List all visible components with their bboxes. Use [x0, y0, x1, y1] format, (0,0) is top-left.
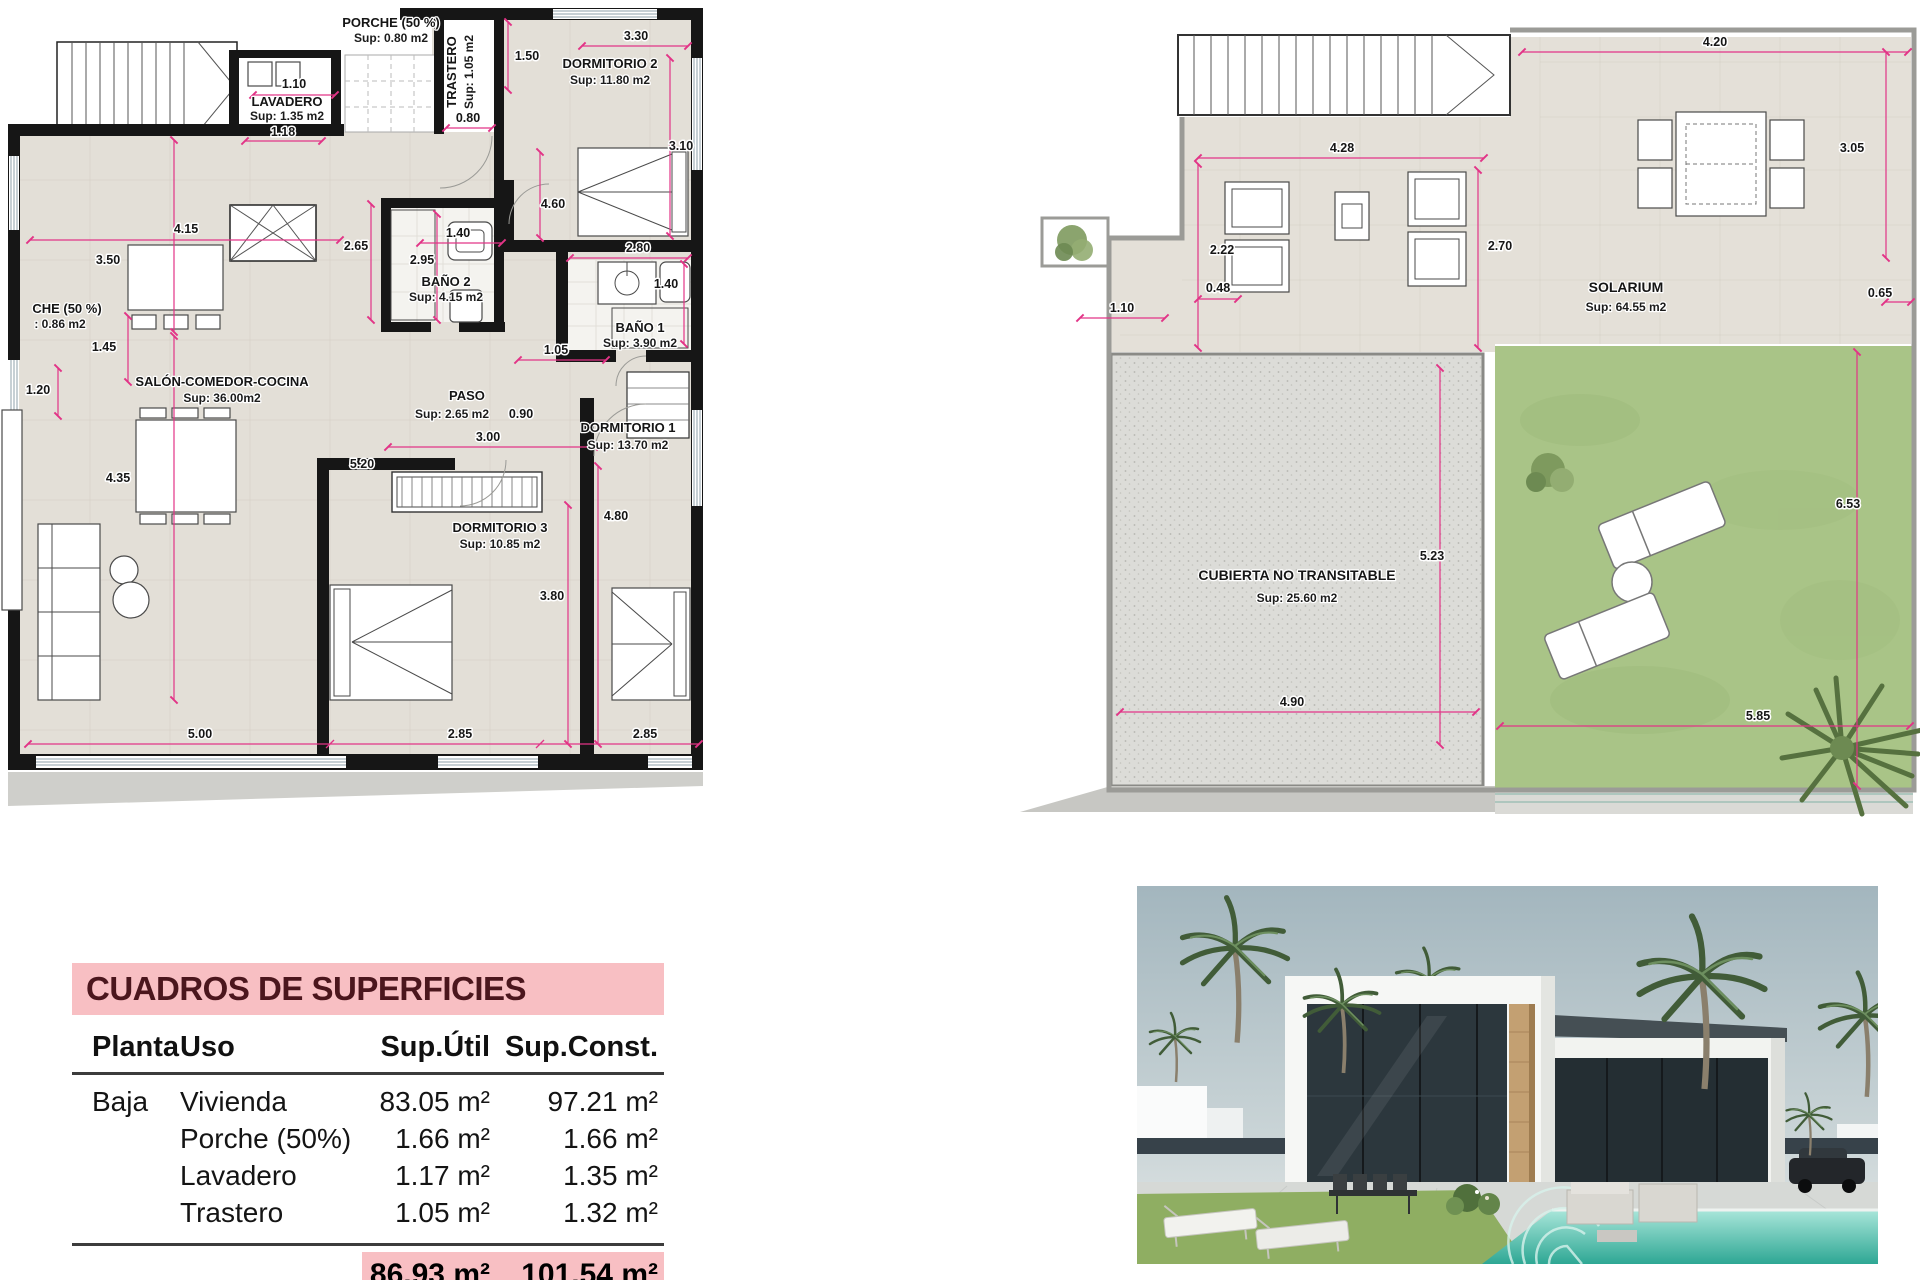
cell-const: 1.32 m² — [504, 1194, 664, 1231]
architectural-sheet: PORCHE (50 %) Sup: 0.80 m2 1.10 LAVADERO… — [0, 0, 1920, 1280]
dim-cubierta-w: 4.90 — [1280, 695, 1304, 709]
dim-lawn-w: 5.85 — [1746, 709, 1770, 723]
dim-dorm1-w: 2.85 — [633, 727, 657, 741]
dim-kitchen-w: 4.15 — [174, 222, 198, 236]
dim-dorm1-h: 4.80 — [604, 509, 628, 523]
room-sup-bano1: Sup: 3.90 m2 — [603, 336, 677, 350]
total-const: 101.54 m² — [504, 1258, 664, 1280]
dim-porch-b: 1.20 — [26, 383, 50, 397]
glass-right — [1552, 1058, 1768, 1188]
room-label-cubierta: CUBIERTA NO TRANSITABLE — [1198, 567, 1395, 583]
dim-door-a: 1.05 — [544, 343, 568, 357]
dim-paso-extra: 0.90 — [509, 407, 533, 421]
dim-trastero-h: 1.50 — [515, 49, 539, 63]
room-label-porche-top: PORCHE (50 %) — [342, 15, 440, 30]
cell-util: 1.05 m² — [362, 1194, 504, 1231]
dim-hall-b: 2.95 — [410, 253, 434, 267]
room-sup-paso: Sup: 2.65 m2 — [415, 407, 489, 421]
room-label-salon: SALÓN-COMEDOR-COCINA — [135, 374, 309, 389]
dim-hall-pass: 1.40 — [446, 226, 470, 240]
staircase — [57, 42, 237, 132]
bed-dorm1 — [612, 588, 690, 700]
dim-kitchen-w: 4.28 — [1330, 141, 1354, 155]
ground-floor-plan: PORCHE (50 %) Sup: 0.80 m2 1.10 LAVADERO… — [0, 0, 705, 810]
room-sup-dorm3: Sup: 10.85 m2 — [460, 537, 541, 551]
cell-planta — [72, 1157, 180, 1194]
room-sup-trastero: Sup: 1.05 m2 — [462, 35, 476, 109]
bed-dorm3 — [330, 585, 452, 700]
cell-util: 1.66 m² — [362, 1120, 504, 1157]
dim-solarium-top: 4.20 — [1703, 35, 1727, 49]
dining-table — [136, 408, 236, 524]
room-label-trastero: TRASTERO — [444, 36, 459, 108]
dim-lavadero-top: 1.10 — [282, 77, 306, 91]
dim-bano1-w: 2.80 — [626, 241, 650, 255]
total-band: 86.93 m² 101.54 m² — [362, 1252, 664, 1280]
room-sup-solarium: Sup: 64.55 m2 — [1586, 300, 1667, 314]
surface-table-header: Planta Uso Sup.Útil Sup.Const. — [72, 1031, 664, 1075]
cell-planta — [72, 1194, 180, 1231]
room-label-porche-left: CHE (50 %) — [32, 301, 101, 316]
dim-solarium-right: 3.05 — [1840, 141, 1864, 155]
room-label-dorm2: DORMITORIO 2 — [562, 56, 657, 71]
dim-kitchen-h: 2.22 — [1210, 243, 1234, 257]
dim-planter-w: 1.10 — [1110, 301, 1134, 315]
room-sup-dorm2: Sup: 11.80 m2 — [570, 73, 650, 87]
cell-planta — [72, 1120, 180, 1157]
room-label-solarium: SOLARIUM — [1589, 279, 1664, 295]
dim-dorm2-h: 3.10 — [669, 139, 693, 153]
cell-const: 1.66 m² — [504, 1120, 664, 1157]
roof-staircase — [1178, 35, 1510, 115]
surface-table-body: Baja Vivienda 83.05 m² 97.21 m² Porche (… — [72, 1075, 664, 1246]
dim-dorm3-h: 5.20 — [350, 457, 374, 471]
bathroom2-fixtures — [391, 208, 494, 322]
room-sup-dorm1: Sup: 13.70 m2 — [588, 438, 669, 452]
room-sup-porche-left: : 0.86 m2 — [34, 317, 86, 331]
dim-salon-w: 5.00 — [188, 727, 212, 741]
dim-step-a: 0.48 — [1206, 281, 1230, 295]
dim-salon-h: 4.35 — [106, 471, 130, 485]
room-label-bano1: BAÑO 1 — [615, 320, 664, 335]
roof-plan: 4.20 3.05 4.28 2.22 2.70 0.48 1.10 0.65 … — [880, 0, 1920, 820]
dim-trastero-w: 0.80 — [456, 111, 480, 125]
col-sup-const: Sup.Const. — [504, 1031, 664, 1064]
col-planta: Planta — [72, 1031, 180, 1064]
dim-porch-a: 1.45 — [92, 340, 116, 354]
room-sup-salon: Sup: 36.00m2 — [183, 391, 261, 405]
dim-dorm2-w: 3.30 — [624, 29, 648, 43]
dim-lawn-h: 6.53 — [1836, 497, 1860, 511]
room-sup-lavadero: Sup: 1.35 m2 — [250, 109, 324, 123]
dim-dorm2-v: 4.60 — [541, 197, 565, 211]
villa-render — [1137, 886, 1878, 1264]
dim-lavadero-bottom: 1.18 — [271, 125, 295, 139]
surface-table: CUADROS DE SUPERFICIES Planta Uso Sup.Út… — [72, 963, 664, 1280]
dim-dorm3-w: 2.85 — [448, 727, 472, 741]
cell-uso: Trastero — [180, 1194, 362, 1231]
dim-solarium-mid: 2.70 — [1488, 239, 1512, 253]
col-sup-util: Sup.Útil — [362, 1031, 504, 1064]
porch-top — [345, 55, 437, 132]
dim-hall-a: 2.65 — [344, 239, 368, 253]
room-label-lavadero: LAVADERO — [251, 94, 322, 109]
dim-edge: 0.65 — [1868, 286, 1892, 300]
cell-uso: Vivienda — [180, 1083, 362, 1120]
room-label-dorm1: DORMITORIO 1 — [580, 420, 675, 435]
cell-planta: Baja — [72, 1083, 180, 1120]
cell-const: 1.35 m² — [504, 1157, 664, 1194]
total-util: 86.93 m² — [362, 1258, 504, 1280]
cell-const: 97.21 m² — [504, 1083, 664, 1120]
room-sup-porche-top: Sup: 0.80 m2 — [354, 31, 428, 45]
room-sup-cubierta: Sup: 25.60 m2 — [1257, 591, 1338, 605]
room-sup-bano2: Sup: 4.15 m2 — [409, 290, 483, 304]
cell-util: 83.05 m² — [362, 1083, 504, 1120]
cell-util: 1.17 m² — [362, 1157, 504, 1194]
cell-uso: Porche (50%) — [180, 1120, 362, 1157]
surface-table-total: 86.93 m² 101.54 m² — [72, 1252, 664, 1280]
dim-dorm3-v: 3.80 — [540, 589, 564, 603]
dim-kitchen-h: 3.50 — [96, 253, 120, 267]
room-label-dorm3: DORMITORIO 3 — [452, 520, 547, 535]
col-uso: Uso — [180, 1031, 362, 1064]
cell-uso: Lavadero — [180, 1157, 362, 1194]
room-label-paso: PASO — [449, 388, 485, 403]
room-label-bano2: BAÑO 2 — [421, 274, 470, 289]
kitchen-island — [128, 245, 223, 329]
walkway-wedge — [8, 772, 703, 806]
dim-paso-w: 3.00 — [476, 430, 500, 444]
bed-dorm2 — [578, 148, 688, 236]
dim-cubierta-h: 5.23 — [1420, 549, 1444, 563]
dim-bano1-h: 1.40 — [654, 277, 678, 291]
surface-table-title: CUADROS DE SUPERFICIES — [72, 963, 664, 1015]
